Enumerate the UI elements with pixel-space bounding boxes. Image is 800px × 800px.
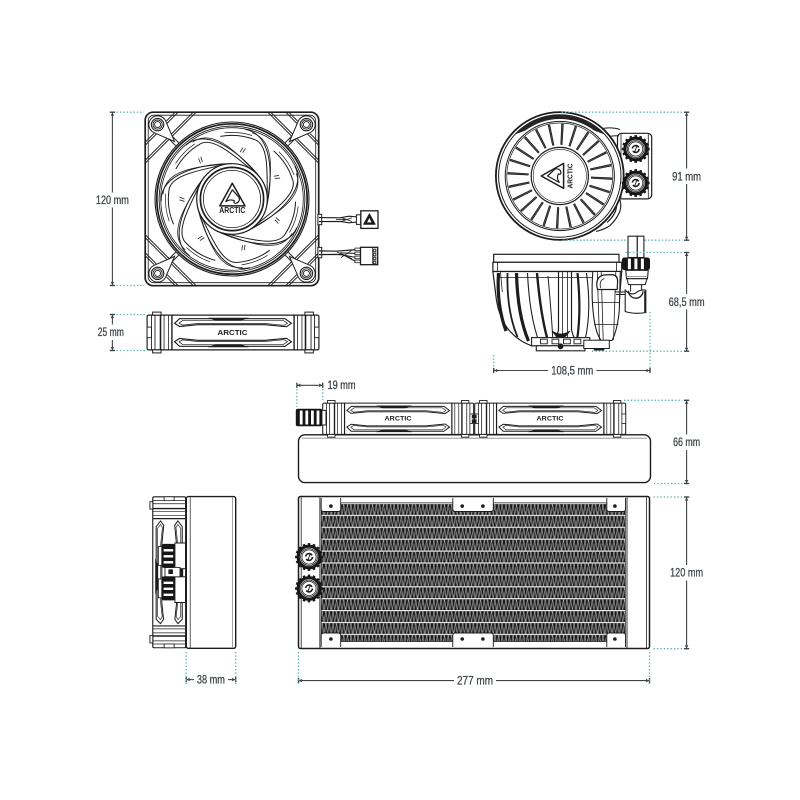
svg-text:25 mm: 25 mm [98,327,124,339]
svg-text:68,5 mm: 68,5 mm [669,297,705,309]
svg-text:ARCTIC: ARCTIC [537,415,564,422]
svg-text:ARCTIC: ARCTIC [219,206,245,215]
svg-text:120 mm: 120 mm [96,195,129,207]
svg-text:ARCTIC: ARCTIC [385,415,412,422]
svg-text:91 mm: 91 mm [672,171,701,183]
svg-text:38 mm: 38 mm [197,675,225,687]
svg-text:120 mm: 120 mm [670,568,703,580]
svg-text:277 mm: 277 mm [457,676,493,688]
svg-text:ARCTIC: ARCTIC [218,330,248,337]
svg-text:66 mm: 66 mm [673,437,700,449]
svg-text:19 mm: 19 mm [328,380,356,392]
svg-text:108,5 mm: 108,5 mm [551,365,593,377]
svg-text:ARCTIC: ARCTIC [565,163,574,189]
